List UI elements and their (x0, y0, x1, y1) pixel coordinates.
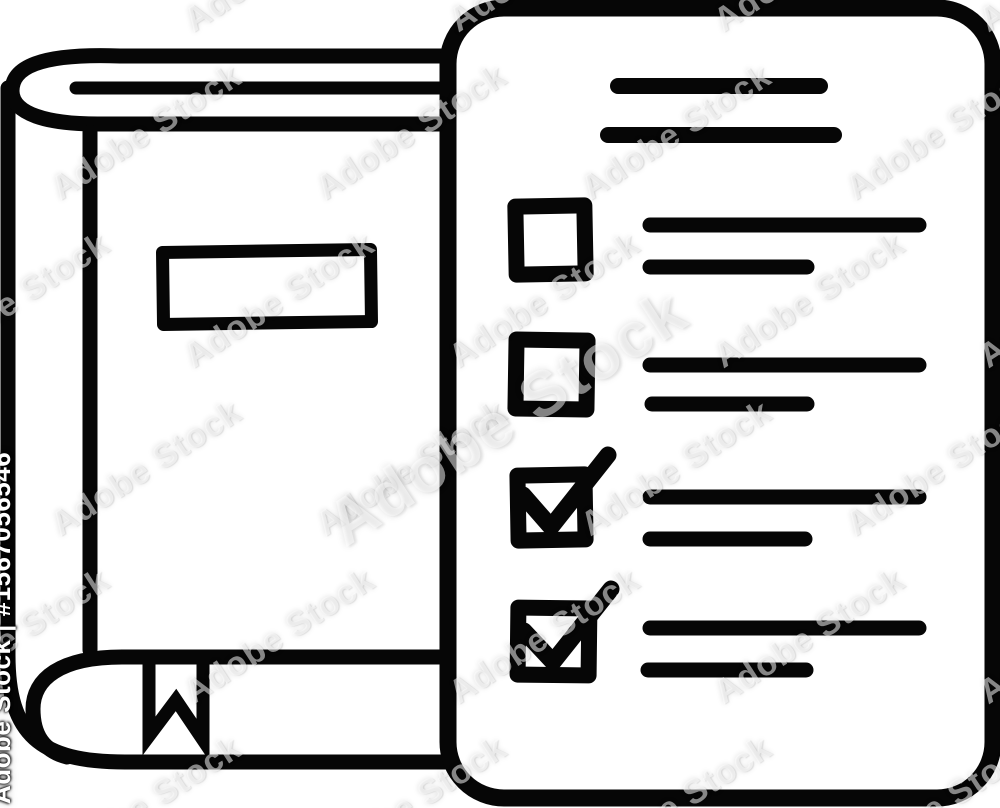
bookmark-ribbon-icon (149, 663, 203, 740)
watermark-credit: Adobe Stock | #1567056546 (0, 452, 17, 804)
line-art-illustration (0, 0, 1000, 808)
stock-illustration-canvas: Adobe StockAdobe StockAdobe StockAdobe S… (0, 0, 1000, 808)
book-cover-label (163, 250, 372, 325)
book-icon (8, 56, 465, 762)
checklist-page-icon (448, 8, 993, 798)
book-bottom-pages (33, 657, 465, 757)
